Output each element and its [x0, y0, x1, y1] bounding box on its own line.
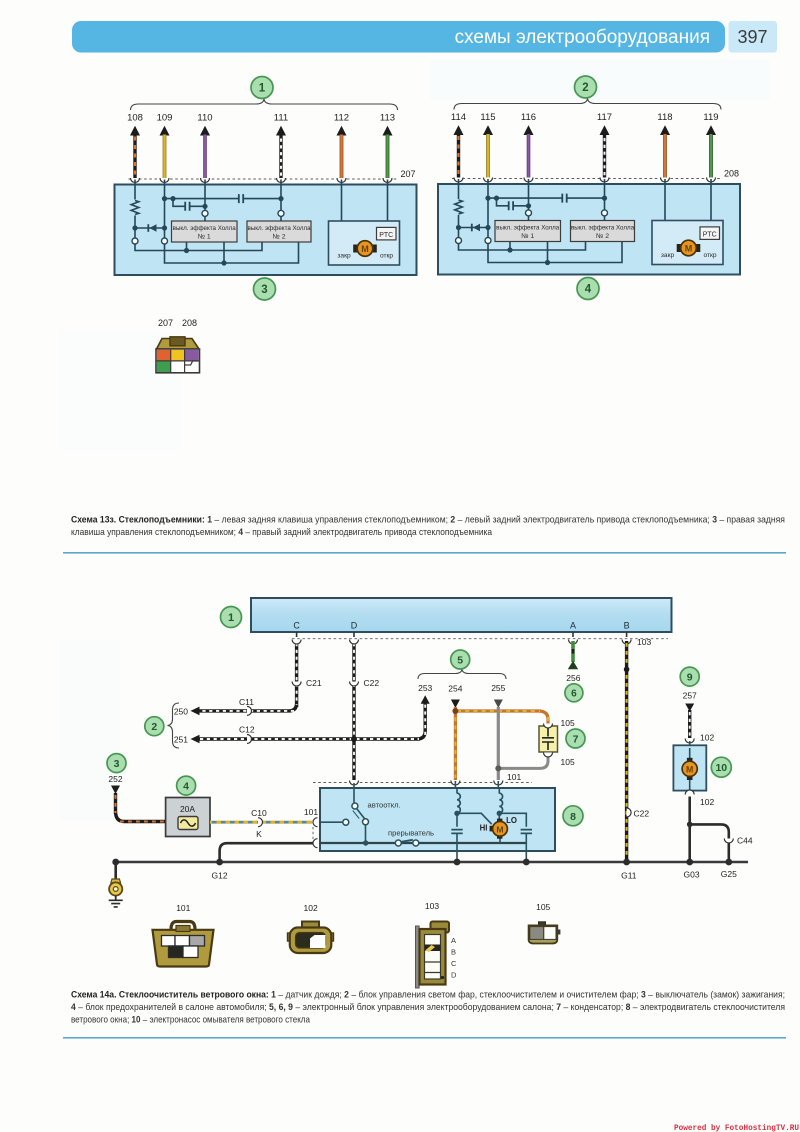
svg-text:C: C: [293, 621, 300, 631]
svg-text:2: 2: [151, 721, 157, 733]
svg-text:105: 105: [561, 757, 575, 767]
svg-text:101: 101: [507, 772, 521, 782]
svg-text:клавиша управления стеклоподъе: клавиша управления стеклоподъемником; 4 …: [71, 527, 493, 537]
svg-text:101: 101: [176, 903, 190, 913]
svg-text:254: 254: [448, 684, 462, 694]
svg-text:5: 5: [457, 654, 463, 666]
svg-text:256: 256: [566, 673, 580, 683]
svg-text:8: 8: [570, 811, 576, 823]
svg-text:C: C: [451, 959, 457, 968]
svg-text:LO: LO: [506, 816, 517, 825]
svg-text:схемы электрооборудования: схемы электрооборудования: [455, 27, 710, 48]
svg-text:115: 115: [480, 112, 495, 123]
svg-text:108: 108: [127, 113, 143, 124]
svg-text:114: 114: [451, 112, 466, 123]
svg-text:C22: C22: [634, 809, 650, 819]
svg-text:C22: C22: [364, 678, 380, 688]
svg-text:4: 4: [183, 781, 189, 793]
svg-text:20A: 20A: [180, 804, 195, 814]
svg-text:2: 2: [582, 82, 588, 94]
svg-text:252: 252: [108, 774, 122, 784]
svg-text:105: 105: [536, 902, 550, 912]
svg-text:4: 4: [585, 284, 592, 296]
svg-text:D: D: [451, 971, 457, 980]
svg-text:Схема 14а. Стеклоочиститель ве: Схема 14а. Стеклоочиститель ветрового ок…: [71, 990, 785, 1000]
svg-text:B: B: [451, 948, 456, 957]
svg-text:105: 105: [561, 718, 575, 728]
svg-text:113: 113: [380, 113, 395, 124]
svg-text:250: 250: [174, 707, 188, 717]
svg-text:10: 10: [715, 762, 727, 774]
svg-text:1: 1: [259, 83, 266, 95]
svg-text:112: 112: [334, 113, 349, 124]
svg-text:397: 397: [737, 27, 767, 47]
svg-text:M: M: [686, 764, 693, 774]
svg-text:3: 3: [114, 758, 120, 770]
svg-text:C12: C12: [239, 725, 255, 735]
svg-text:прерыватель: прерыватель: [388, 829, 434, 838]
svg-text:208: 208: [724, 169, 739, 179]
svg-text:B: B: [624, 621, 630, 631]
svg-text:111: 111: [274, 113, 288, 124]
svg-text:103: 103: [637, 637, 651, 647]
svg-text:7: 7: [573, 733, 579, 745]
svg-text:102: 102: [700, 797, 714, 807]
svg-text:A: A: [570, 621, 576, 631]
svg-text:Powered by FotoHostingTV.RU: Powered by FotoHostingTV.RU: [674, 1123, 799, 1132]
svg-text:102: 102: [700, 733, 714, 743]
svg-text:251: 251: [174, 735, 188, 745]
svg-text:M: M: [496, 824, 503, 834]
svg-text:9: 9: [687, 671, 693, 683]
svg-text:110: 110: [197, 113, 212, 124]
svg-text:116: 116: [521, 112, 536, 123]
svg-text:A: A: [451, 936, 456, 945]
svg-text:автооткл.: автооткл.: [368, 801, 401, 810]
svg-text:207: 207: [401, 169, 416, 179]
svg-text:Схема 13з. Стеклоподъемники: 1: Схема 13з. Стеклоподъемники: 1 – левая з…: [71, 515, 785, 525]
svg-text:117: 117: [597, 112, 612, 123]
svg-text:4 – блок предохранителей в сал: 4 – блок предохранителей в салоне автомо…: [71, 1002, 785, 1012]
svg-text:G03: G03: [684, 870, 700, 880]
svg-text:ветрового окна; 10 – электрона: ветрового окна; 10 – электронасос омыват…: [71, 1015, 311, 1025]
svg-text:253: 253: [418, 683, 432, 693]
svg-text:255: 255: [491, 683, 505, 693]
svg-text:C10: C10: [251, 808, 267, 818]
svg-text:207: 207: [158, 318, 173, 328]
svg-text:208: 208: [182, 318, 197, 328]
svg-text:G11: G11: [621, 871, 637, 881]
svg-text:K: K: [256, 829, 262, 839]
svg-text:C44: C44: [737, 836, 753, 846]
svg-text:101: 101: [304, 807, 318, 817]
svg-text:103: 103: [425, 901, 439, 911]
svg-text:6: 6: [571, 689, 577, 700]
svg-text:3: 3: [261, 284, 267, 296]
svg-text:118: 118: [657, 112, 672, 123]
svg-text:109: 109: [157, 113, 173, 124]
svg-text:D: D: [351, 621, 358, 631]
svg-text:1: 1: [228, 612, 234, 624]
svg-text:G12: G12: [212, 871, 228, 881]
svg-text:102: 102: [304, 903, 318, 913]
svg-text:257: 257: [683, 691, 697, 701]
svg-text:119: 119: [703, 112, 718, 123]
svg-text:C21: C21: [306, 678, 322, 688]
svg-text:C11: C11: [239, 697, 254, 707]
svg-text:HI: HI: [480, 824, 488, 833]
svg-text:G25: G25: [721, 869, 737, 879]
